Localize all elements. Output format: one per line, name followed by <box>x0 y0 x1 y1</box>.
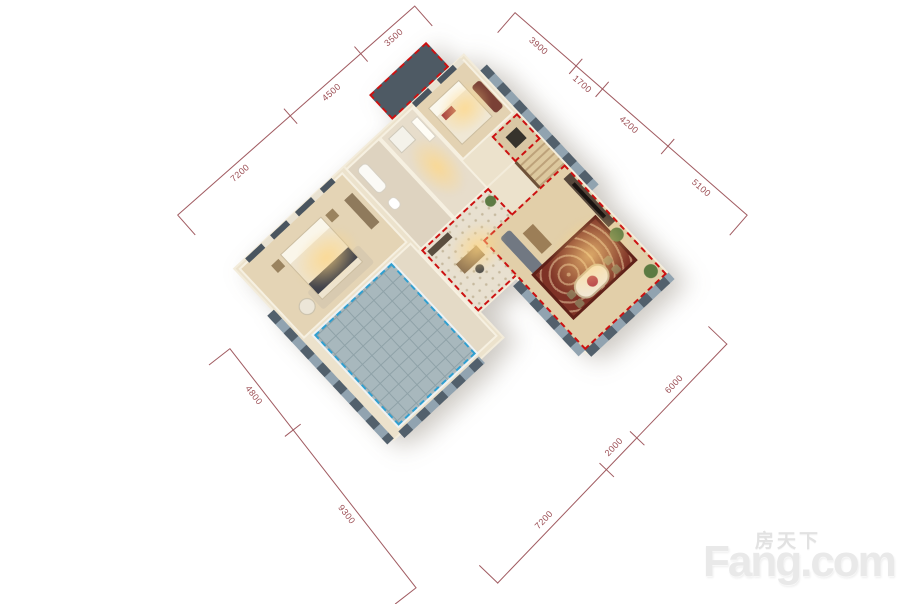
dimension-label: 1700 <box>571 73 594 95</box>
dimension-label: 3900 <box>527 35 550 57</box>
dimension-tick <box>209 349 230 366</box>
dimension-tick <box>595 81 609 97</box>
floorplan-page: { "dims": { "top_left": ["7200", "4500",… <box>0 0 900 600</box>
flower-vase <box>585 273 601 289</box>
master-bed <box>280 216 363 300</box>
toilet <box>386 195 403 212</box>
dimension-tick <box>284 108 298 124</box>
plant <box>641 261 661 281</box>
dimension-label: 3500 <box>382 26 405 48</box>
dimension-label: 2000 <box>603 436 625 459</box>
dimension-tick <box>599 463 614 478</box>
dimension-label: 7200 <box>533 509 555 532</box>
dimension-tick <box>178 215 196 235</box>
dimension-tick <box>569 58 583 74</box>
dimension-tick <box>729 215 747 235</box>
nightstand <box>325 208 339 222</box>
desk-chair <box>473 262 486 275</box>
dimension-tick <box>285 424 301 437</box>
dimension-tick <box>708 326 727 345</box>
dimension-label: 4200 <box>618 114 641 136</box>
bed-throw <box>309 247 358 294</box>
dimension-tick <box>497 13 515 33</box>
dimension-label: 4800 <box>243 384 264 407</box>
dimension-label: 5100 <box>690 177 713 199</box>
plant <box>483 193 499 209</box>
void-shaft-opening <box>506 127 527 148</box>
shower <box>388 125 416 153</box>
dimension-tick <box>395 588 416 604</box>
dimension-label: 6000 <box>663 373 685 396</box>
nightstand <box>271 259 285 273</box>
dimension-tick <box>479 565 498 584</box>
dimension-tick <box>415 6 433 26</box>
fang-watermark: 房天下 Fang.com <box>703 520 900 592</box>
dimension-label: 9300 <box>336 503 357 526</box>
dimension-tick <box>354 46 368 62</box>
dimension-label: 4500 <box>320 81 343 103</box>
dimension-tick <box>661 139 675 155</box>
dimension-label: 7200 <box>228 162 251 184</box>
fang-logo: Fang.com <box>703 537 895 587</box>
dimension-tick <box>630 431 645 446</box>
